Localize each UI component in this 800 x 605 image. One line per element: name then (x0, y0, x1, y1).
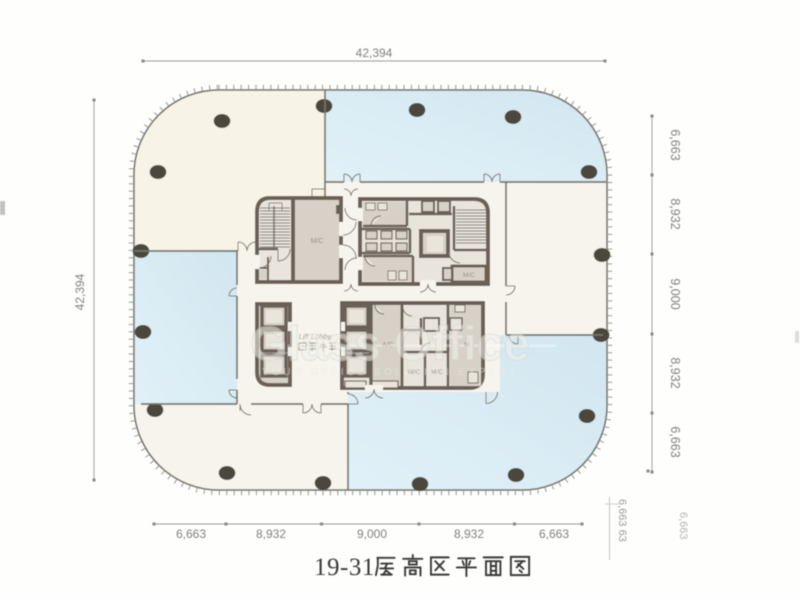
svg-text:M/C: M/C (463, 272, 475, 279)
svg-text:19-31: 19-31 (314, 554, 375, 581)
svg-text:8,932: 8,932 (668, 357, 682, 388)
svg-text:6,663: 6,663 (176, 527, 206, 541)
svg-text:6,663: 6,663 (677, 512, 689, 540)
svg-text:M/C: M/C (311, 238, 324, 245)
svg-text:42,394: 42,394 (73, 273, 87, 310)
svg-text:YOUR OFFICE SOLUTION EXPERT: YOUR OFFICE SOLUTION EXPERT (262, 367, 519, 378)
svg-text:42,394: 42,394 (356, 46, 393, 60)
svg-text:6,663: 6,663 (539, 527, 569, 541)
svg-text:9,000: 9,000 (357, 527, 387, 541)
svg-text:Glass Office: Glass Office (250, 318, 530, 371)
svg-text:6,663 63: 6,663 63 (616, 499, 628, 542)
svg-text:8,932: 8,932 (454, 527, 484, 541)
svg-text:8,932: 8,932 (256, 527, 286, 541)
svg-text:8,932: 8,932 (668, 198, 682, 229)
svg-text:6,663: 6,663 (668, 426, 682, 457)
svg-text:6,663: 6,663 (668, 129, 682, 160)
svg-text:9,000: 9,000 (668, 278, 682, 309)
